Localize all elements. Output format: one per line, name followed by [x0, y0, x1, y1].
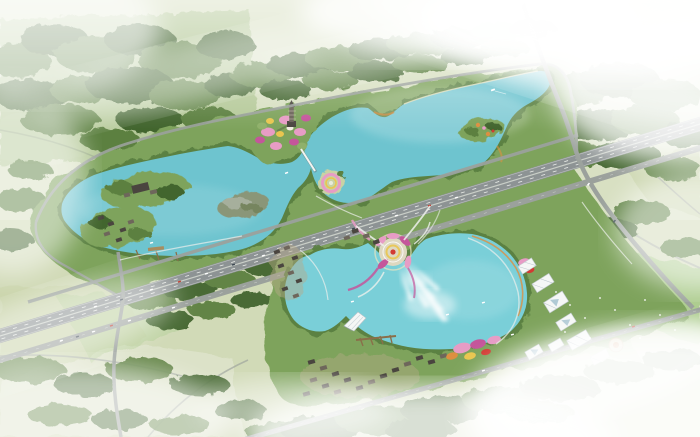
aerial-rendering — [0, 0, 700, 437]
park-masterplan-rendering — [0, 0, 700, 437]
plaza-sculpture — [390, 249, 395, 254]
